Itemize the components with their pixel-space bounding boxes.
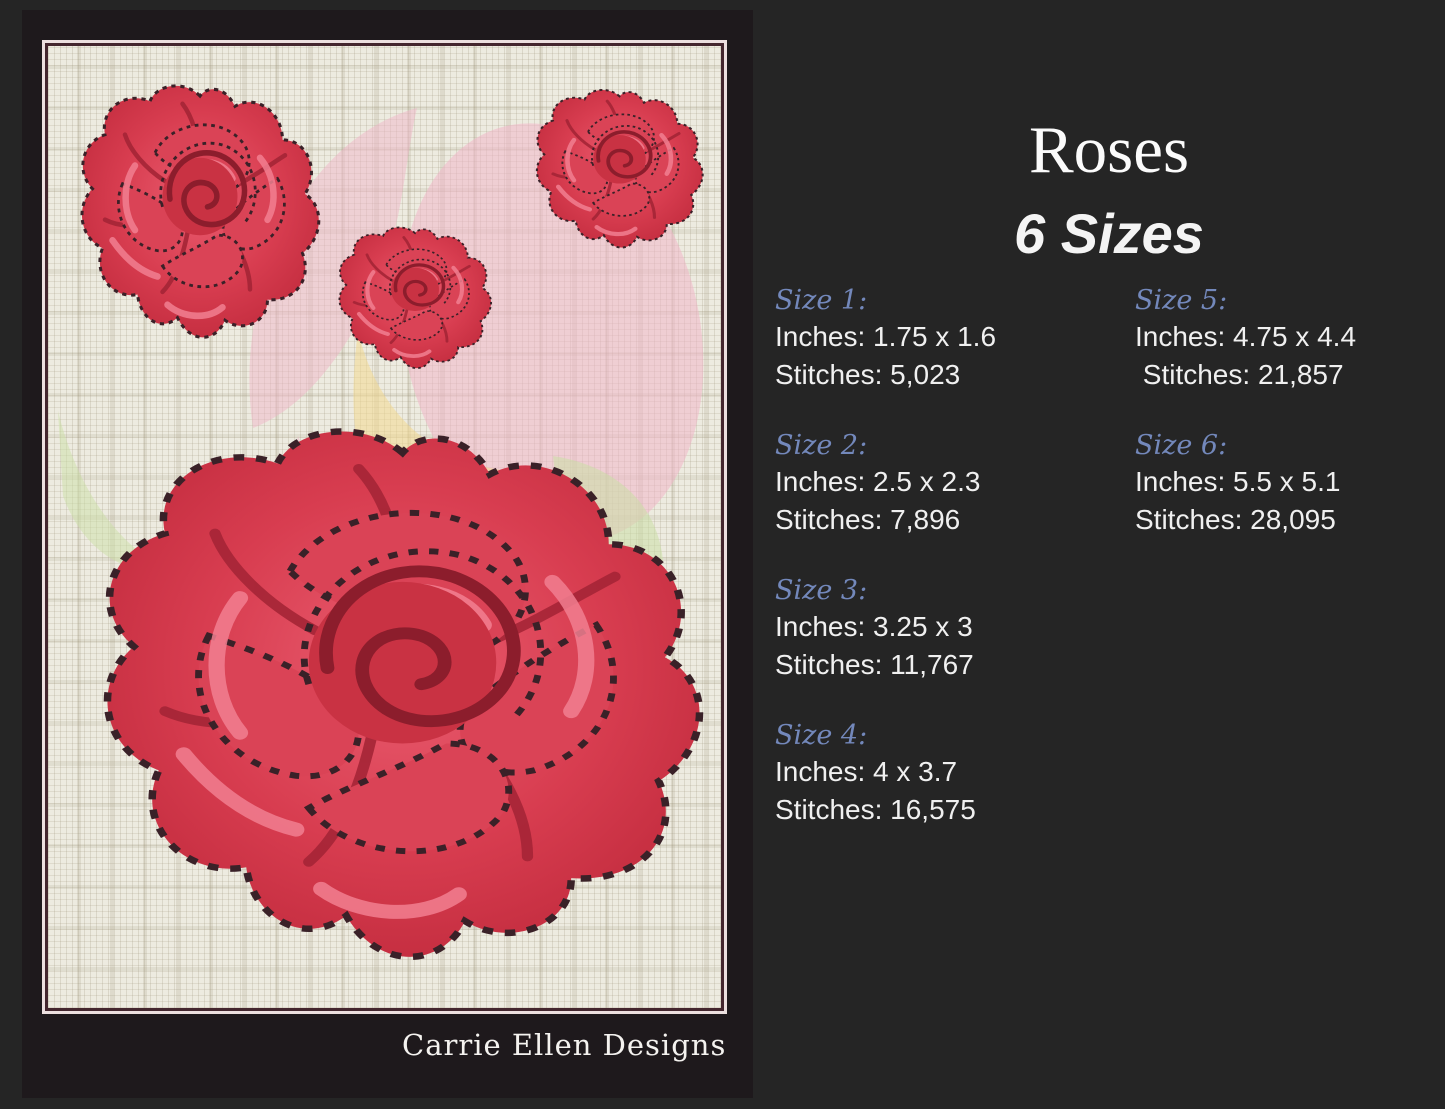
size-stitches: Stitches: 5,023 <box>775 356 1120 394</box>
rose-top-left <box>82 86 319 337</box>
size-inches: Inches: 4 x 3.7 <box>775 753 1120 791</box>
size-block-4: Size 4: Inches: 4 x 3.7 Stitches: 16,575 <box>775 719 1120 829</box>
size-label: Size 4: <box>775 719 1120 753</box>
design-preview-panel: Carrie Ellen Designs <box>22 10 753 1098</box>
brand-name: Carrie Ellen Designs <box>402 1028 725 1062</box>
size-label: Size 3: <box>775 574 1120 608</box>
size-block-5: Size 5: Inches: 4.75 x 4.4 Stitches: 21,… <box>1135 284 1440 394</box>
size-inches: Inches: 2.5 x 2.3 <box>775 463 1120 501</box>
size-stitches: Stitches: 28,095 <box>1135 501 1440 539</box>
embroidery-preview-frame <box>45 43 724 1011</box>
size-label: Size 6: <box>1135 429 1440 463</box>
page-title: Roses <box>753 114 1445 188</box>
size-block-3: Size 3: Inches: 3.25 x 3 Stitches: 11,76… <box>775 574 1120 684</box>
size-label: Size 2: <box>775 429 1120 463</box>
size-inches: Inches: 3.25 x 3 <box>775 608 1120 646</box>
size-stitches: Stitches: 21,857 <box>1135 356 1440 394</box>
size-inches: Inches: 4.75 x 4.4 <box>1135 318 1440 356</box>
size-block-6: Size 6: Inches: 5.5 x 5.1 Stitches: 28,0… <box>1135 429 1440 539</box>
sizes-column-right: Size 5: Inches: 4.75 x 4.4 Stitches: 21,… <box>1135 284 1440 574</box>
size-stitches: Stitches: 7,896 <box>775 501 1120 539</box>
listing-graphic: Carrie Ellen Designs Roses 6 Sizes Size … <box>0 0 1445 1109</box>
size-stitches: Stitches: 11,767 <box>775 646 1120 684</box>
size-stitches: Stitches: 16,575 <box>775 791 1120 829</box>
rose-embroidery-art <box>48 46 721 1008</box>
size-inches: Inches: 5.5 x 5.1 <box>1135 463 1440 501</box>
subtitle: 6 Sizes <box>753 203 1445 265</box>
size-block-1: Size 1: Inches: 1.75 x 1.6 Stitches: 5,0… <box>775 284 1120 394</box>
size-inches: Inches: 1.75 x 1.6 <box>775 318 1120 356</box>
size-block-2: Size 2: Inches: 2.5 x 2.3 Stitches: 7,89… <box>775 429 1120 539</box>
sizes-column-left: Size 1: Inches: 1.75 x 1.6 Stitches: 5,0… <box>775 284 1120 864</box>
size-label: Size 5: <box>1135 284 1440 318</box>
size-label: Size 1: <box>775 284 1120 318</box>
